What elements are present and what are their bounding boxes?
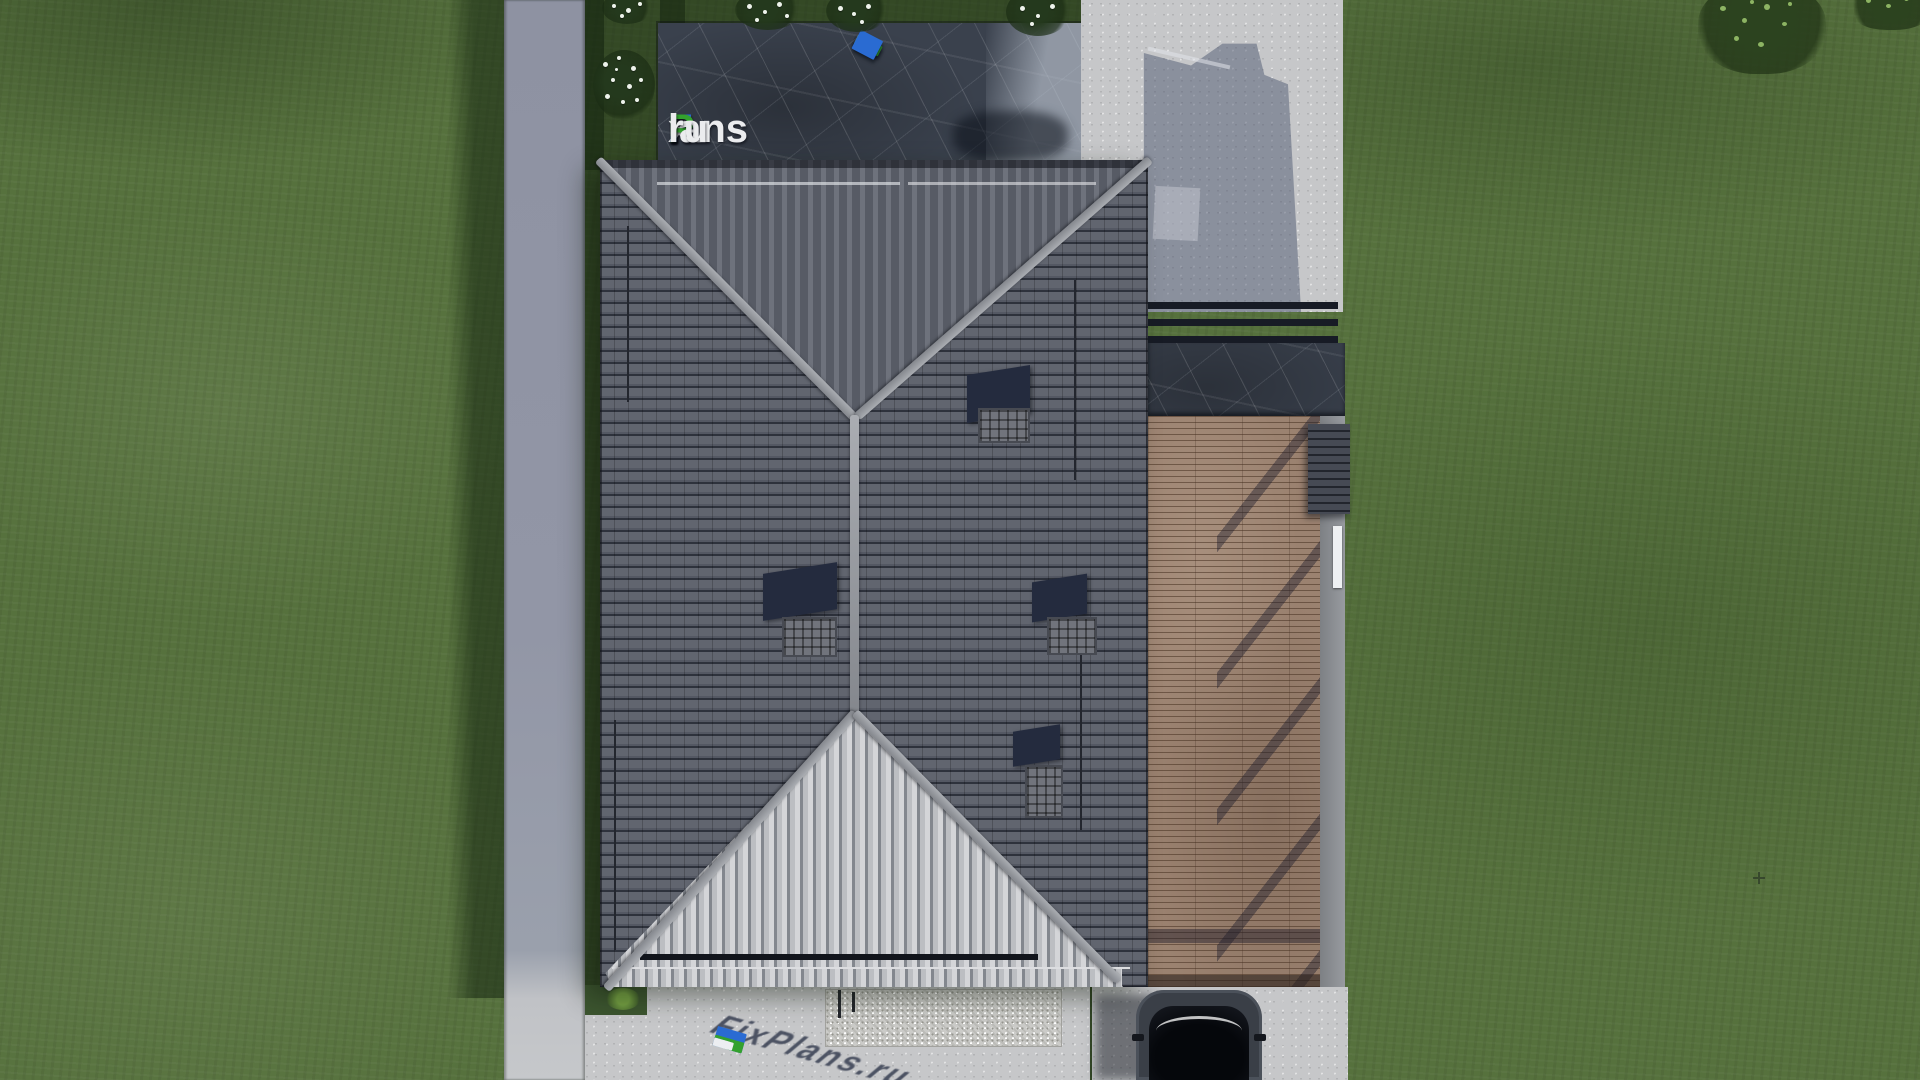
snow-guard-rail [657, 182, 900, 185]
logo-letters-ru: ru [668, 109, 708, 149]
skylight-shadow [1032, 574, 1087, 623]
shadow-window-light [1153, 186, 1200, 241]
roof-hatch [1047, 617, 1097, 655]
entry-post [852, 992, 855, 1012]
gutter-line [612, 967, 1130, 969]
garden-walkway [504, 0, 585, 1080]
roof-pipe [1080, 630, 1082, 830]
roof-top-eave [600, 160, 1148, 168]
roof-hatch [1025, 765, 1063, 818]
roof-pipe [627, 226, 629, 402]
pergola-beam [1148, 336, 1338, 343]
roof-pipe [614, 720, 616, 950]
pergola-beam [1148, 302, 1338, 309]
deck-edge [1148, 975, 1320, 987]
car-mirror [1254, 1034, 1266, 1041]
car-windshield-glare [1156, 1016, 1242, 1046]
entry-post [838, 990, 841, 1018]
terrace-stone-band [1148, 343, 1345, 416]
skylight-shadow [763, 562, 837, 621]
chimney [978, 408, 1030, 443]
snow-guard-rail [908, 182, 1096, 185]
site-plan-render: FixPlans.ru [0, 0, 1920, 1080]
granite-entry-pad [825, 989, 1062, 1047]
deck-bench [1333, 526, 1342, 588]
deck-shadow-band [1148, 929, 1320, 943]
pergola-beam [1148, 319, 1338, 326]
main-ridge [850, 415, 859, 715]
roof-bottom-eave [614, 969, 1122, 987]
flower-bush [593, 50, 655, 120]
grass-tuft [606, 988, 640, 1010]
deck-canopy-roof [1308, 424, 1350, 514]
roof-pipe [1074, 280, 1076, 480]
car-mirror [1132, 1034, 1144, 1041]
skylight-shadow [1013, 724, 1060, 766]
pergola-post-shadows [1217, 416, 1320, 987]
roof-hatch [782, 617, 837, 657]
shrub-canopy [1698, 0, 1826, 74]
snow-guard-bar [640, 954, 1038, 960]
car [1136, 990, 1262, 1080]
field-marker [1753, 872, 1765, 884]
wood-deck [1148, 416, 1320, 987]
house-roof [600, 160, 1148, 987]
lawn-shade-top-left [0, 0, 470, 170]
